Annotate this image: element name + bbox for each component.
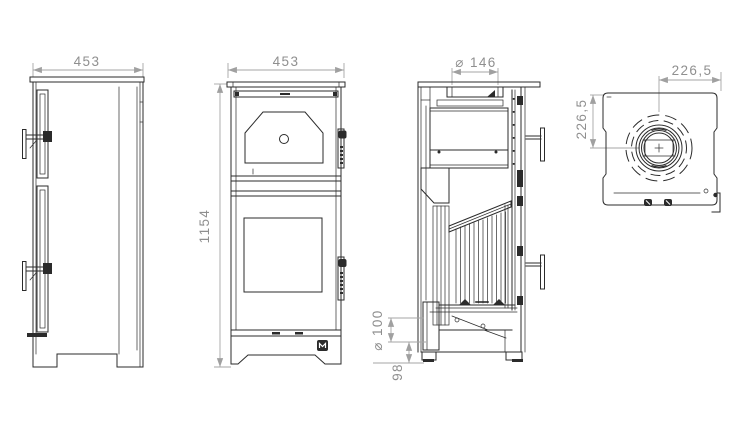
section-oven-handle [526,128,545,161]
dim-rear-outlet-height-label: 98 [390,363,405,381]
dim-top-center-y-label: 226,5 [574,99,589,140]
dim-side-width-label: 453 [74,54,101,69]
grate-floor [430,299,517,338]
dim-front-width-label: 453 [273,54,300,69]
section-top-plate [418,82,540,87]
drawing-sheet: 453 [0,0,750,439]
rear-hole [704,189,708,193]
technical-drawing-canvas: 453 [0,0,750,439]
dim-front-height-label: 1154 [197,209,212,244]
top-center-y-dimension: 226,5 [574,95,640,148]
front-body-outline [231,87,341,364]
section-firebox-handle [526,255,545,289]
dim-rear-outlet-diameter-label: ⌀ 100 [370,309,385,350]
flue-diameter-dimension: ⌀ 146 [452,55,498,85]
section-back-wall [418,87,430,352]
front-oven-handle [338,129,347,168]
front-view: 453 1154 [197,54,347,367]
section-left-duct [421,168,449,325]
flue-collar [437,87,503,106]
front-divider-bands [231,176,341,196]
side-body-outline [33,82,143,367]
front-width-dimension: 453 [228,54,344,78]
front-height-dimension: 1154 [197,84,231,367]
base-assembly [421,330,522,352]
side-view: 453 [23,54,145,367]
top-view: 226,5 226,5 [574,63,721,212]
top-rear-details [614,189,720,212]
section-view: ⌀ 146 [370,55,545,381]
top-center-x-dimension: 226,5 [659,63,721,112]
front-firebox-handle [338,257,347,300]
rear-outlet-cover [423,302,439,350]
section-legs [422,352,523,362]
front-top-plate [227,82,345,87]
side-firebox-door-edge [37,186,48,332]
front-bottom-trim [231,330,341,336]
side-width-dimension: 453 [33,54,143,77]
dim-flue-diameter-label: ⌀ 146 [455,55,496,70]
top-body-outline [603,93,717,205]
dim-top-center-x-label: 226,5 [672,63,713,78]
front-oven-window [245,112,323,174]
brand-emblem [317,340,328,351]
front-vent-strip [234,91,338,97]
oven-vent-knob [280,135,289,144]
oven-chamber [430,87,508,168]
side-top-plate [30,77,144,82]
center-mark [655,144,663,152]
side-ash-lip [27,333,47,337]
baffle-plate [449,201,511,232]
front-firebox-window [244,218,322,292]
